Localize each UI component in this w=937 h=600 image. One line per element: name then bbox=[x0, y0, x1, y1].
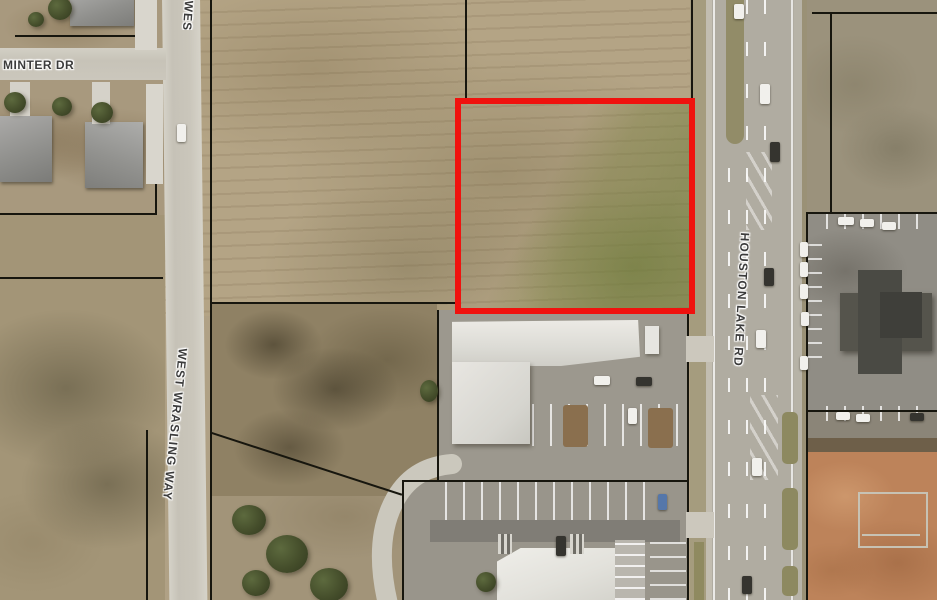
parcel-line bbox=[806, 212, 937, 214]
car bbox=[860, 219, 874, 227]
tree bbox=[52, 97, 72, 116]
car bbox=[800, 262, 808, 277]
driveway-apron-south bbox=[686, 512, 714, 538]
tree bbox=[4, 92, 26, 113]
parcel-line bbox=[0, 277, 163, 279]
parcel-line bbox=[15, 35, 152, 37]
parcel-line bbox=[146, 430, 148, 600]
car bbox=[177, 124, 186, 142]
car bbox=[742, 576, 752, 594]
building-dark-roof-block bbox=[880, 292, 922, 338]
parcel-line bbox=[402, 480, 689, 482]
tree bbox=[310, 568, 348, 600]
car bbox=[760, 84, 770, 104]
car bbox=[770, 142, 780, 162]
foundation-inner-line bbox=[862, 534, 920, 536]
landscape-strip bbox=[694, 542, 704, 600]
tree bbox=[266, 535, 308, 573]
road-label-west-wrasling-way-clipped-wrap: WEST WRASLING WAY bbox=[172, 0, 200, 30]
parcel-line bbox=[465, 0, 467, 102]
tree bbox=[420, 380, 438, 402]
median-island-east-1 bbox=[782, 412, 798, 464]
drive-thru-canopy bbox=[615, 540, 645, 600]
car bbox=[756, 330, 766, 348]
soil-band-right bbox=[806, 438, 937, 452]
car bbox=[764, 268, 774, 286]
parcel-line bbox=[402, 480, 404, 600]
tree bbox=[28, 12, 44, 27]
road-label-minter-dr: MINTER DR bbox=[3, 58, 74, 72]
car bbox=[800, 356, 808, 370]
car bbox=[734, 4, 744, 19]
lane-edge-line-west bbox=[713, 0, 715, 600]
building-retail-wing-west bbox=[452, 362, 530, 444]
parcel-line bbox=[691, 0, 693, 102]
field-topright bbox=[800, 0, 937, 212]
tree bbox=[232, 505, 266, 535]
house-roof-top bbox=[70, 0, 134, 26]
landscape-island-center-1 bbox=[563, 405, 588, 447]
car bbox=[910, 413, 924, 421]
landscape-island-center-2 bbox=[648, 408, 673, 448]
driveway-apron-center bbox=[686, 336, 714, 362]
drive-aisle-bottom-lot bbox=[430, 520, 680, 542]
car bbox=[658, 494, 667, 510]
road-label-west-wrasling-way-clipped: WEST WRASLING WAY bbox=[172, 0, 196, 30]
parcel-line bbox=[806, 410, 937, 412]
parcel-line bbox=[0, 213, 157, 215]
parcel-line bbox=[210, 0, 212, 600]
field-left bbox=[0, 215, 165, 600]
car bbox=[752, 458, 762, 476]
car bbox=[836, 412, 850, 420]
car bbox=[594, 376, 610, 385]
parking-stripes-right-lot-column bbox=[808, 238, 822, 358]
highlight-parcel-outline bbox=[455, 98, 695, 314]
building-retail-wing-north bbox=[452, 320, 640, 366]
driveway bbox=[146, 84, 163, 184]
tree bbox=[91, 102, 113, 123]
car bbox=[556, 536, 566, 556]
car bbox=[800, 284, 808, 299]
building-retail-outbuilding bbox=[645, 326, 659, 354]
gore-chevrons-north bbox=[746, 152, 772, 230]
car bbox=[856, 414, 870, 422]
car bbox=[801, 312, 809, 326]
parking-stripes-bottom-lot bbox=[445, 482, 660, 520]
driveway bbox=[135, 0, 157, 50]
foundation-outline bbox=[858, 492, 928, 548]
building-bottom-white-roof bbox=[497, 548, 615, 600]
crosswalk-checker-1 bbox=[498, 534, 512, 554]
road-west-wrasling-way bbox=[162, 0, 207, 600]
tree bbox=[242, 570, 270, 596]
tree bbox=[476, 572, 496, 592]
car bbox=[800, 242, 808, 257]
car bbox=[882, 222, 896, 230]
house-roof-west bbox=[0, 116, 52, 182]
car bbox=[838, 217, 854, 225]
parcel-line bbox=[830, 12, 832, 214]
crosswalk-checker-2 bbox=[570, 534, 584, 554]
aerial-map-canvas: MINTER DR WEST WRASLING WAY WEST WRASLIN… bbox=[0, 0, 937, 600]
parcel-line bbox=[437, 310, 439, 482]
parking-stripes-drive-thru bbox=[650, 542, 686, 600]
car bbox=[628, 408, 637, 424]
median-island-east-3 bbox=[782, 566, 798, 596]
median-island-east-2 bbox=[782, 488, 798, 550]
median-island-north bbox=[726, 0, 744, 144]
car bbox=[636, 377, 652, 386]
house-roof-east bbox=[85, 122, 143, 188]
parcel-line bbox=[210, 302, 459, 304]
